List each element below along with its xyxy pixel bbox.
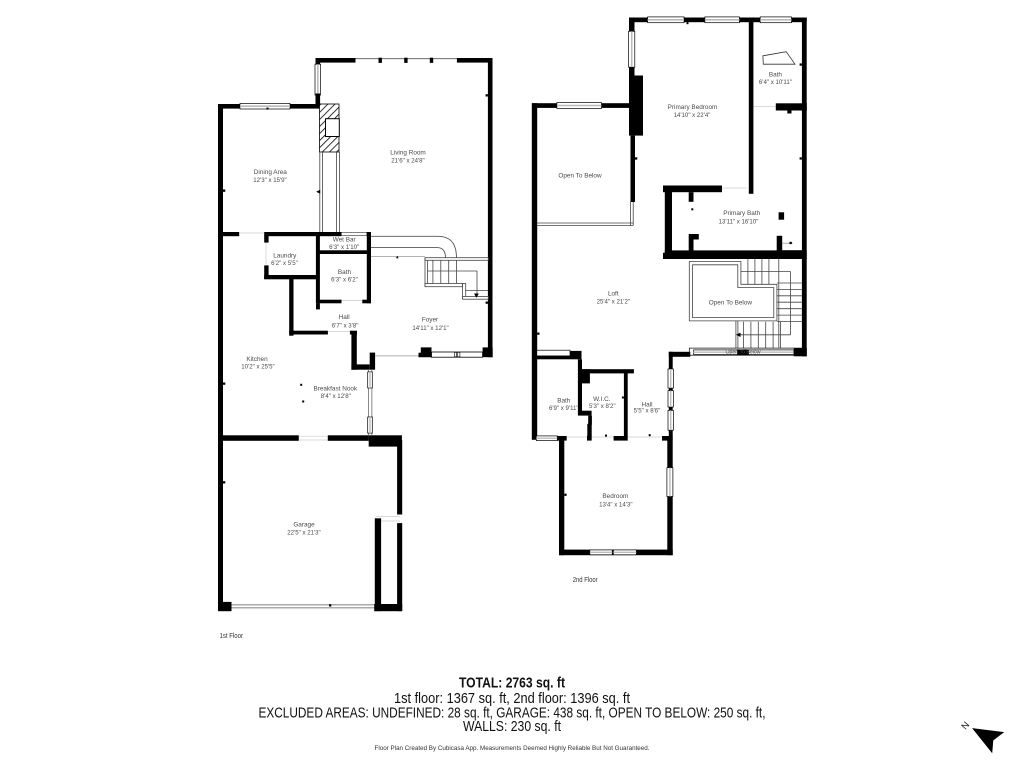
svg-text:Bath: Bath xyxy=(557,398,571,405)
svg-text:Bath: Bath xyxy=(338,269,352,276)
svg-text:13'4" x 14'3": 13'4" x 14'3" xyxy=(599,502,632,509)
svg-text:21'6" x 24'8": 21'6" x 24'8" xyxy=(391,157,424,164)
svg-text:Bedroom: Bedroom xyxy=(602,493,628,500)
svg-text:Hall: Hall xyxy=(339,314,350,321)
svg-text:1st Floor: 1st Floor xyxy=(220,631,244,640)
svg-text:Wet Bar: Wet Bar xyxy=(333,236,357,243)
svg-text:Open To Below: Open To Below xyxy=(558,173,602,180)
svg-text:Living Room: Living Room xyxy=(390,150,426,157)
svg-text:6'2" x 5'5": 6'2" x 5'5" xyxy=(271,260,298,267)
svg-text:Bath: Bath xyxy=(769,72,783,79)
svg-text:6'7" x 3'8": 6'7" x 3'8" xyxy=(332,323,359,330)
svg-text:6'3" x 1'10": 6'3" x 1'10" xyxy=(329,244,359,251)
svg-text:Dining Area: Dining Area xyxy=(254,169,287,176)
svg-text:W.I.C.: W.I.C. xyxy=(593,396,611,403)
svg-text:5'5" x 8'6": 5'5" x 8'6" xyxy=(634,408,661,415)
svg-text:10'2" x 25'5": 10'2" x 25'5" xyxy=(241,364,274,371)
svg-text:22'5" x 21'3": 22'5" x 21'3" xyxy=(287,530,320,537)
svg-text:Primary Bath: Primary Bath xyxy=(723,210,760,217)
svg-text:Laundry: Laundry xyxy=(273,253,297,260)
svg-text:Kitchen: Kitchen xyxy=(246,356,268,363)
svg-text:2nd Floor: 2nd Floor xyxy=(573,575,598,584)
svg-text:14'10" x 22'4": 14'10" x 22'4" xyxy=(674,112,711,119)
svg-text:6'9" x 9'11": 6'9" x 9'11" xyxy=(549,405,579,412)
svg-text:Foyer: Foyer xyxy=(422,317,439,324)
svg-text:Garage: Garage xyxy=(293,522,315,529)
svg-text:12'3" x 15'9": 12'3" x 15'9" xyxy=(253,177,286,184)
svg-text:5'3" x 8'2": 5'3" x 8'2" xyxy=(589,403,616,410)
svg-text:Open To Below: Open To Below xyxy=(725,350,760,356)
svg-text:Primary Bedroom: Primary Bedroom xyxy=(668,104,718,111)
svg-text:TOTAL: 2763 sq. ft: TOTAL: 2763 sq. ft xyxy=(459,675,565,691)
svg-text:Open To Below: Open To Below xyxy=(709,300,753,307)
svg-text:Breakfast Nook: Breakfast Nook xyxy=(313,386,357,393)
svg-text:14'11" x 12'1": 14'11" x 12'1" xyxy=(412,325,448,332)
svg-text:13'11" x 16'10": 13'11" x 16'10" xyxy=(719,218,759,225)
svg-text:Floor Plan Created By Cubicasa: Floor Plan Created By Cubicasa App. Meas… xyxy=(375,745,650,752)
svg-text:WALLS: 230 sq. ft: WALLS: 230 sq. ft xyxy=(463,719,561,735)
svg-text:Loft: Loft xyxy=(608,291,619,298)
svg-text:6'3" x 6'2": 6'3" x 6'2" xyxy=(331,276,358,283)
svg-text:8'4" x 12'8": 8'4" x 12'8" xyxy=(321,393,351,400)
svg-text:6'4" x 10'11": 6'4" x 10'11" xyxy=(759,79,792,86)
svg-text:25'4" x 21'2": 25'4" x 21'2" xyxy=(597,299,630,306)
